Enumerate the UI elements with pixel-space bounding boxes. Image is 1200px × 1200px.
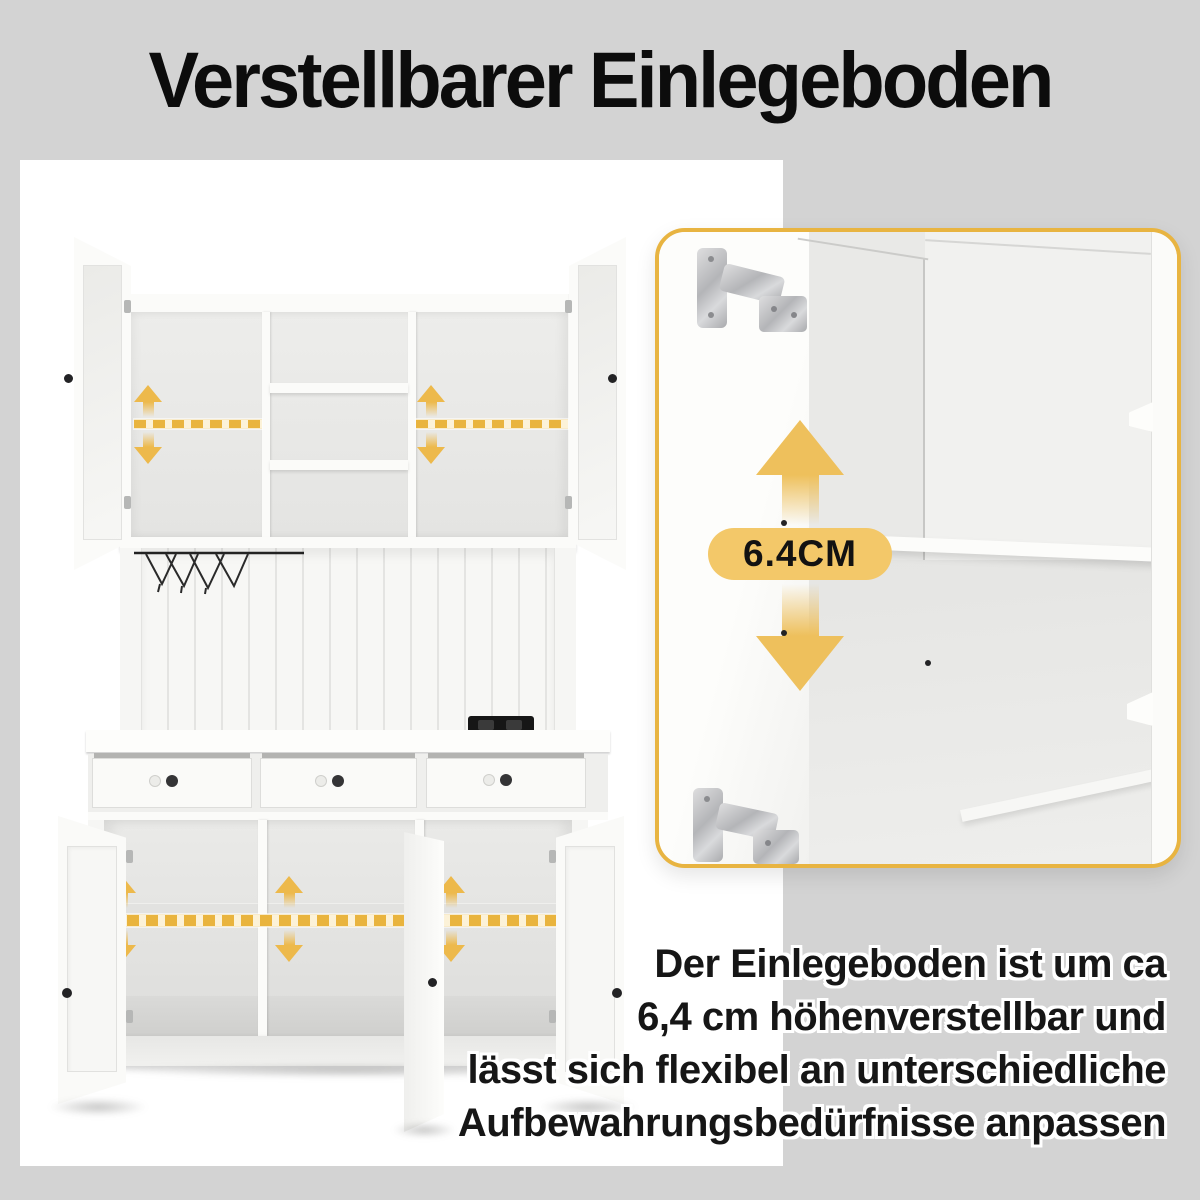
description-line: Der Einlegeboden ist um ca	[458, 938, 1166, 991]
hinge-screw	[708, 312, 714, 318]
door-shadow	[48, 1098, 148, 1116]
drawer-knob	[500, 774, 512, 786]
door-knob	[62, 988, 72, 998]
hinge-icon	[565, 300, 572, 313]
interior-wall-below-shelf	[809, 560, 1151, 864]
glass-door-right	[569, 237, 626, 570]
lower-divider-left	[258, 820, 267, 1036]
adjustable-shelf-dashed-right	[416, 419, 568, 429]
drawer-knob	[332, 775, 344, 787]
hutch-cubby-shelf-upper	[270, 383, 408, 393]
shelf-pin-hole	[781, 630, 787, 636]
description-line: Aufbewahrungsbedürfnisse anpassen	[458, 1097, 1166, 1150]
hutch-divider-right	[408, 312, 416, 537]
outlet-socket	[506, 720, 522, 730]
hinge-icon	[126, 1010, 133, 1023]
measurement-value: 6.4CM	[743, 533, 857, 575]
detail-zoom-card: 6.4CM	[655, 228, 1181, 868]
door-knob	[428, 978, 437, 987]
lower-door-middle	[404, 832, 444, 1132]
corner-seam	[923, 258, 925, 562]
lower-door-left	[58, 816, 126, 1104]
stemware-rack-icon	[132, 550, 308, 596]
down-arrow-icon	[756, 584, 844, 691]
description-line: lässt sich flexibel an unterschiedliche	[458, 1044, 1166, 1097]
drawer-knob	[316, 776, 326, 786]
glass-pane	[83, 265, 122, 540]
hinge-screw	[771, 306, 777, 312]
up-arrow-icon	[756, 420, 844, 525]
adjustable-shelf-dashed-lower	[108, 914, 568, 927]
up-arrow-icon	[134, 385, 162, 417]
hinge-icon	[126, 850, 133, 863]
door-panel	[67, 846, 117, 1072]
drawer-knob	[150, 776, 160, 786]
description-line: 6,4 cm höhenverstellbar und	[458, 991, 1166, 1044]
hinge-cup	[759, 296, 807, 332]
door-knob	[64, 374, 73, 383]
glass-door-left	[74, 237, 131, 570]
description-text: Der Einlegeboden ist um ca 6,4 cm höhenv…	[458, 938, 1166, 1150]
shelf-pin-hole	[925, 660, 931, 666]
outlet-socket	[478, 720, 494, 730]
cabinet-hinge-icon	[693, 784, 813, 864]
up-arrow-icon	[275, 876, 303, 908]
lower-face-rail	[88, 812, 608, 820]
down-arrow-icon	[134, 432, 162, 464]
hinge-screw	[765, 840, 771, 846]
countertop	[86, 730, 610, 752]
shelf-pin-hole	[781, 520, 787, 526]
hutch-cubby-shelf-lower	[270, 460, 408, 470]
hinge-screw	[704, 796, 710, 802]
hinge-icon	[565, 496, 572, 509]
drawer-knob	[166, 775, 178, 787]
door-knob	[608, 374, 617, 383]
mid-pillar-right	[554, 548, 576, 734]
down-arrow-icon	[275, 930, 303, 962]
product-infographic: Verstellbarer Einlegeboden	[0, 0, 1200, 1200]
cabinet-hinge-icon	[697, 242, 817, 342]
hutch-divider-left	[262, 312, 270, 537]
hinge-screw	[791, 312, 797, 318]
hinge-icon	[549, 850, 556, 863]
interior-wall-right	[925, 232, 1151, 572]
measurement-badge: 6.4CM	[708, 528, 892, 580]
hinge-screw	[708, 256, 714, 262]
glass-pane	[578, 265, 617, 540]
hinge-icon	[124, 496, 131, 509]
down-arrow-icon	[417, 432, 445, 464]
page-title: Verstellbarer Einlegeboden	[24, 34, 1176, 126]
front-frame-right	[1151, 232, 1181, 864]
hutch-top-board	[120, 294, 576, 312]
door-shadow	[392, 1122, 456, 1138]
hinge-cup	[753, 830, 799, 864]
adjustable-shelf-dashed-left	[134, 419, 262, 429]
hinge-icon	[124, 300, 131, 313]
up-arrow-icon	[417, 385, 445, 417]
drawer-knob	[484, 775, 494, 785]
